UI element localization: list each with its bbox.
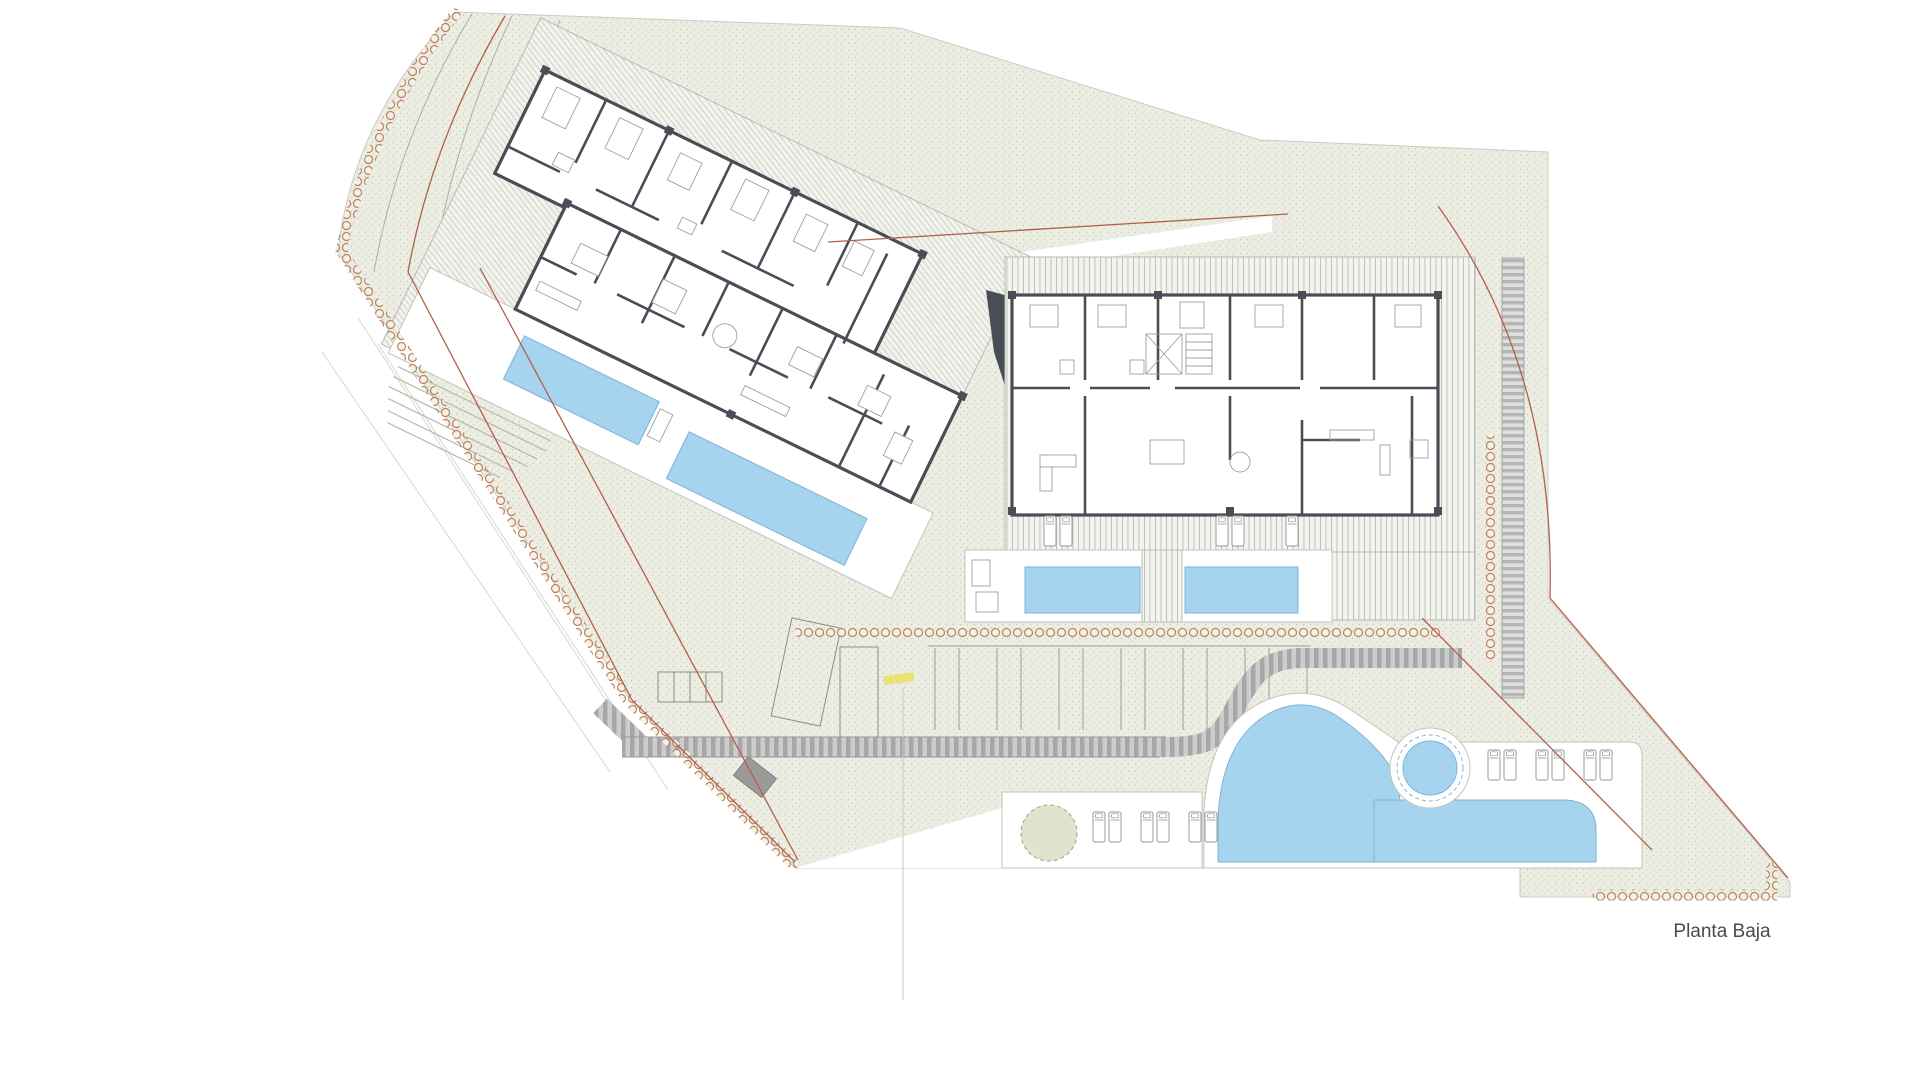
deck-hatch-gap [1142, 550, 1182, 622]
spa-pool [1403, 741, 1457, 795]
east-building [965, 257, 1475, 622]
pool [1185, 567, 1298, 613]
site-plan-canvas: Planta Baja [0, 0, 1920, 1080]
lagoon-pool-arm [1374, 800, 1596, 862]
east-deck-hatch-right [1322, 552, 1475, 620]
stairs-ramp [1502, 258, 1524, 698]
east-pool-terrace [965, 550, 1332, 622]
east-rooms [1008, 291, 1442, 515]
pool [1025, 567, 1140, 613]
planter-circle [1021, 805, 1077, 861]
sheet-title: Planta Baja [1673, 921, 1771, 942]
